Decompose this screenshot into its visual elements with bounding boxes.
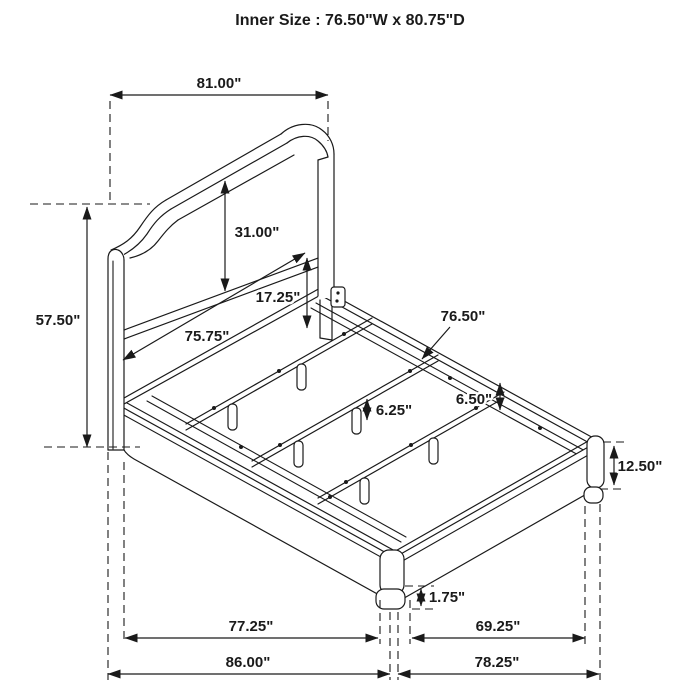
label-inner-rail-length: 75.75" bbox=[185, 328, 230, 345]
leader-76-50 bbox=[422, 327, 450, 359]
corner-post bbox=[380, 550, 404, 594]
rail-bracket bbox=[331, 287, 345, 307]
corner-post bbox=[587, 436, 604, 488]
support-leg bbox=[360, 478, 369, 504]
bed-frame-drawing: Inner Size : 76.50"W x 80.75"D 81.00" 57… bbox=[0, 0, 700, 700]
label-slat-length: 76.50" bbox=[441, 308, 486, 325]
support-leg bbox=[352, 408, 361, 434]
label-footboard-inner-width: 69.25" bbox=[476, 618, 521, 635]
label-rail-height: 17.25" bbox=[256, 289, 301, 306]
support-leg bbox=[429, 438, 438, 464]
label-rail-gap: 6.50" bbox=[456, 391, 492, 408]
label-leg-height: 6.25" bbox=[376, 402, 412, 419]
label-footboard-height: 12.50" bbox=[618, 458, 663, 475]
label-panel-height: 31.00" bbox=[235, 224, 280, 241]
label-foot-height: 1.75" bbox=[429, 589, 465, 606]
diagram-title: Inner Size : 76.50"W x 80.75"D bbox=[235, 12, 465, 29]
support-leg bbox=[228, 404, 237, 430]
headboard-top-rail bbox=[166, 134, 281, 200]
support-leg bbox=[297, 364, 306, 390]
bed-dimension-diagram: Inner Size : 76.50"W x 80.75"D 81.00" 57… bbox=[0, 0, 700, 700]
dimension-lines bbox=[87, 95, 614, 674]
label-headboard-width: 81.00" bbox=[197, 75, 242, 92]
label-overall-depth: 86.00" bbox=[226, 654, 271, 671]
label-footboard-width: 78.25" bbox=[475, 654, 520, 671]
support-leg bbox=[294, 441, 303, 467]
label-frame-depth: 77.25" bbox=[229, 618, 274, 635]
label-headboard-height: 57.50" bbox=[36, 312, 81, 329]
